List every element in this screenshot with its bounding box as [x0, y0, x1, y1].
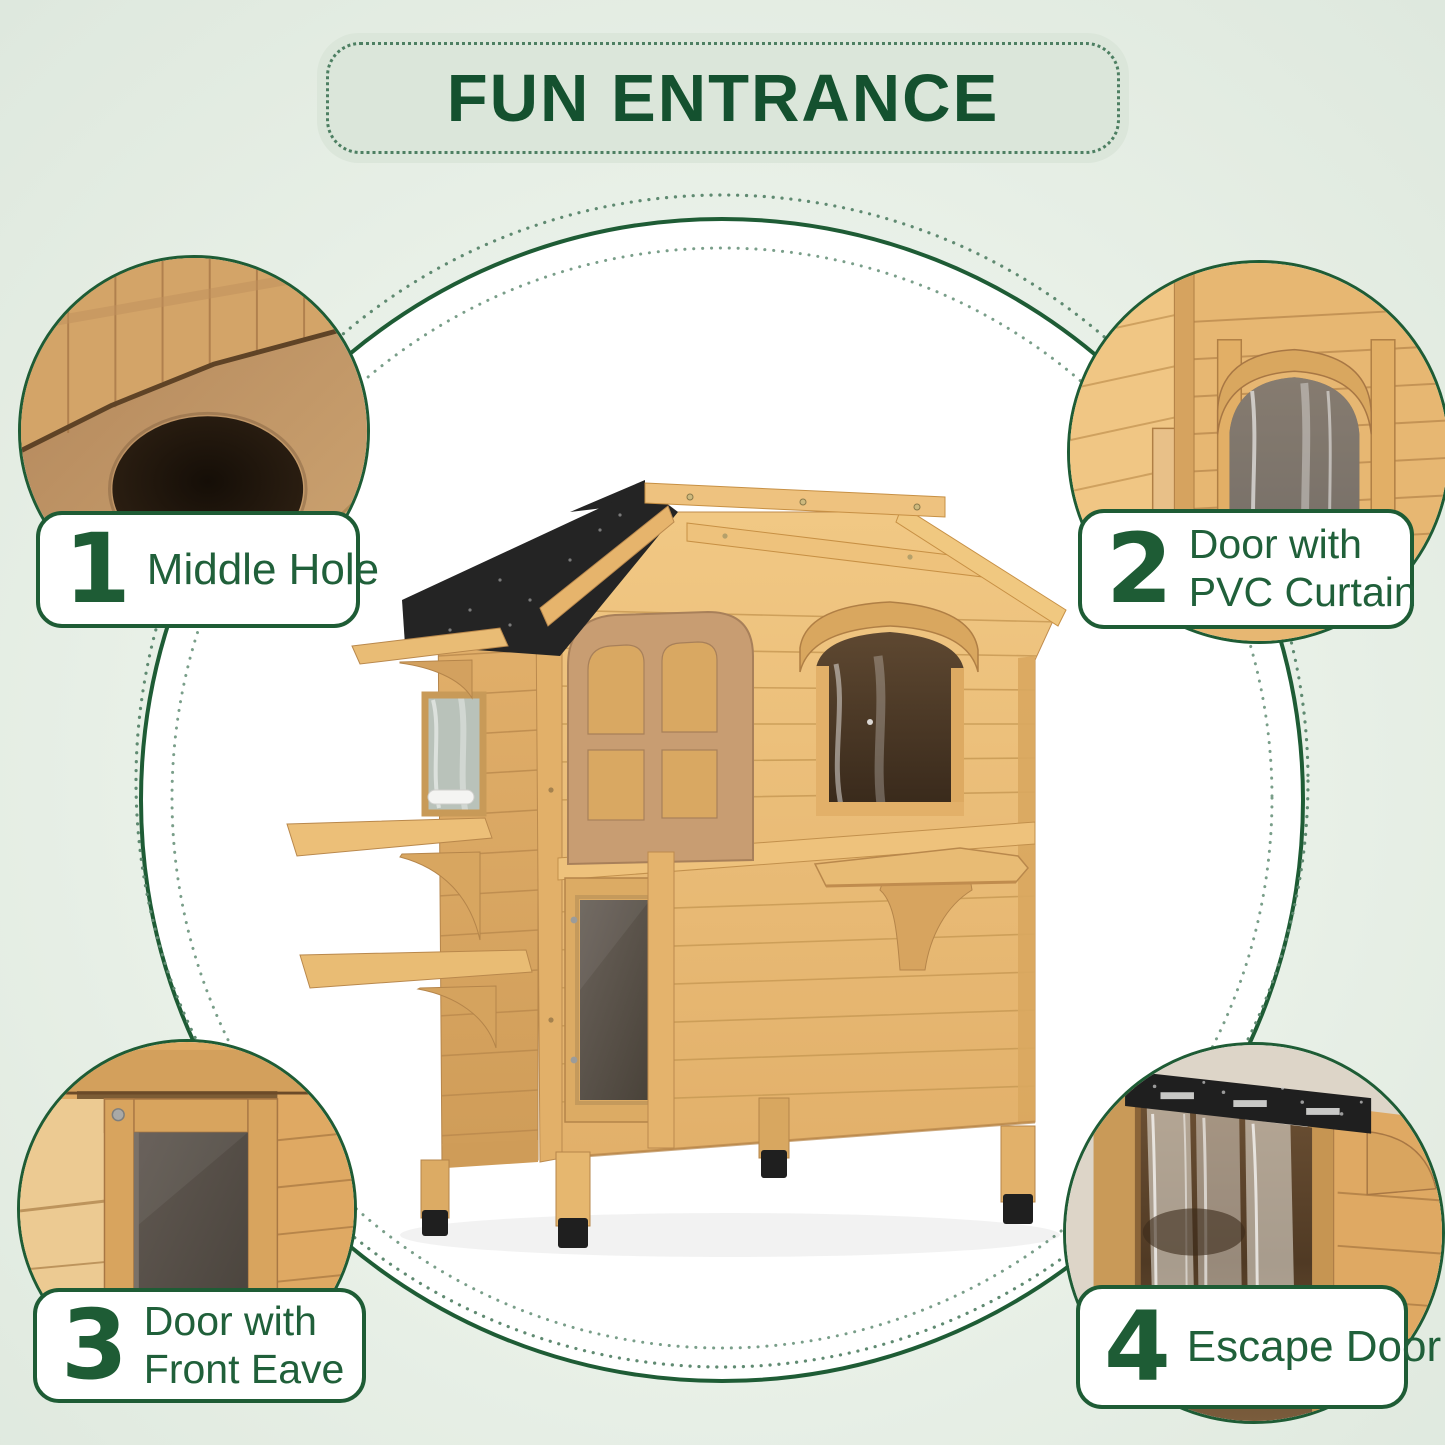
- feature-text-3: Door withFront Eave: [144, 1298, 345, 1393]
- feature-text-1: Middle Hole: [147, 544, 379, 595]
- feature-number-2: 2: [1106, 525, 1173, 613]
- product-photo-cat-house: [270, 460, 1110, 1270]
- feature-label-2: 2 Door withPVC Curtain: [1078, 509, 1414, 629]
- feature-number-3: 3: [61, 1301, 128, 1389]
- feature-label-3: 3 Door withFront Eave: [33, 1288, 366, 1403]
- feature-text-2: Door withPVC Curtain: [1189, 521, 1417, 616]
- product-feature-infographic: FUN ENTRANCE: [0, 0, 1445, 1445]
- page-title: FUN ENTRANCE: [317, 33, 1129, 163]
- banner: FUN ENTRANCE: [317, 33, 1129, 163]
- feature-number-1: 1: [64, 525, 131, 613]
- feature-number-4: 4: [1104, 1303, 1171, 1391]
- feature-label-1: 1 Middle Hole: [36, 511, 360, 628]
- feature-text-4: Escape Door: [1187, 1321, 1441, 1372]
- feature-label-4: 4 Escape Door: [1076, 1285, 1408, 1409]
